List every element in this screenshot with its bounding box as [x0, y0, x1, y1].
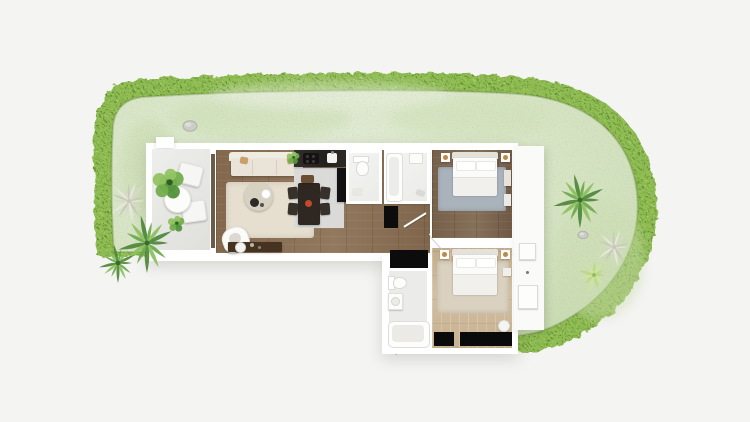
bedroom-1-bench — [504, 170, 511, 186]
burner-4 — [312, 160, 315, 163]
bed-2-pillow-left — [456, 258, 476, 268]
hall-wardrobe — [384, 206, 398, 228]
sofa-seam-2 — [276, 160, 277, 175]
coffee-table-decor — [260, 203, 264, 207]
walkway-unit-2 — [518, 285, 538, 309]
floor-plan-render — [0, 0, 750, 422]
bed-2-lamp-left — [442, 252, 447, 257]
bed-2-blanket — [453, 274, 497, 295]
dining-chair-2 — [287, 203, 298, 216]
bedroom-2-stool — [498, 320, 510, 332]
burner-3 — [306, 160, 309, 163]
glass-wall-frame — [211, 154, 215, 248]
tall-cabinet — [337, 168, 346, 202]
bed-1-blanket — [453, 177, 497, 196]
toilet-2-bowl — [393, 277, 407, 289]
bedroom-1-dresser — [504, 194, 511, 206]
bed-1-pillow-right — [476, 161, 496, 171]
bathtub-inner — [389, 157, 399, 196]
bedroom-2-wardrobe — [390, 250, 428, 270]
bed-2-lamp-right — [503, 252, 508, 257]
dining-chair-1 — [287, 187, 298, 200]
coffee-table-cup — [261, 189, 271, 199]
kitchen-counter — [294, 150, 346, 167]
bedroom-2-shelf — [503, 268, 511, 276]
bedroom-2-window-1 — [434, 332, 454, 346]
dining-chair-head — [301, 175, 314, 183]
dining-chair-4 — [320, 203, 331, 216]
vanity-2-basin — [391, 297, 400, 306]
bed-1-pillow-left — [456, 161, 476, 171]
wall-jut — [156, 137, 174, 148]
wc-mat — [352, 188, 363, 196]
bathtub-2-inner — [392, 325, 424, 342]
table-centerpiece — [305, 200, 312, 207]
terrace-table-decor — [171, 192, 177, 198]
bed-2-pillow-right — [476, 258, 496, 268]
dining-chair-3 — [319, 186, 330, 199]
console-decor-1 — [250, 243, 254, 247]
kitchen-sink — [327, 153, 337, 163]
burner-2 — [312, 155, 315, 158]
bathroom-sink — [409, 153, 423, 164]
bed-1-lamp-left — [443, 155, 448, 160]
walkway-unit-1 — [519, 243, 536, 260]
console-decor-2 — [258, 246, 261, 249]
bed-1-lamp-right — [503, 155, 508, 160]
sofa-pillow-1 — [239, 156, 248, 164]
coffee-table-bowl — [250, 198, 259, 207]
faucet — [331, 151, 334, 154]
toilet-bowl — [356, 161, 369, 176]
burner-1 — [306, 155, 309, 158]
walkway-dot — [526, 271, 529, 274]
console-decor-plate — [235, 242, 246, 253]
terrace-round-table — [164, 186, 191, 213]
bedroom-2-window-2 — [460, 332, 512, 346]
sofa-seam-1 — [252, 160, 253, 175]
